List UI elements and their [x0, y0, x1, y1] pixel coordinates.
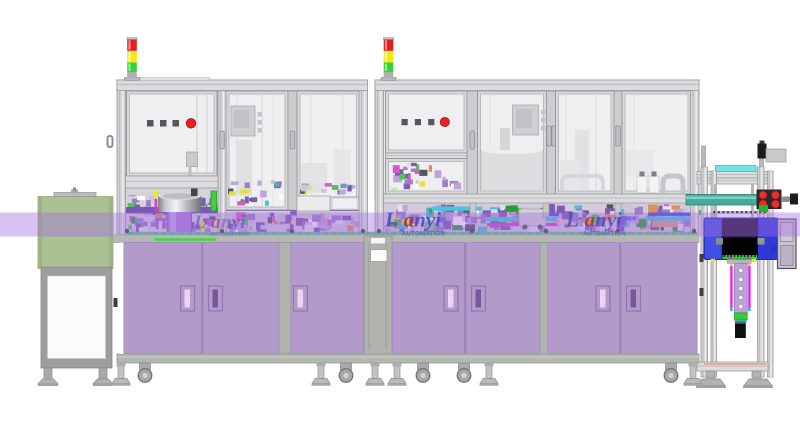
- svg-text:Lianyi: Lianyi: [384, 208, 441, 232]
- svg-text:Lianyi: Lianyi: [193, 212, 246, 233]
- svg-text:AUTOMATION: AUTOMATION: [583, 230, 626, 237]
- svg-text:AUTOMATION: AUTOMATION: [210, 232, 249, 238]
- svg-text:AUTOMATION: AUTOMATION: [402, 230, 445, 237]
- svg-text:Lianyi: Lianyi: [565, 208, 622, 232]
